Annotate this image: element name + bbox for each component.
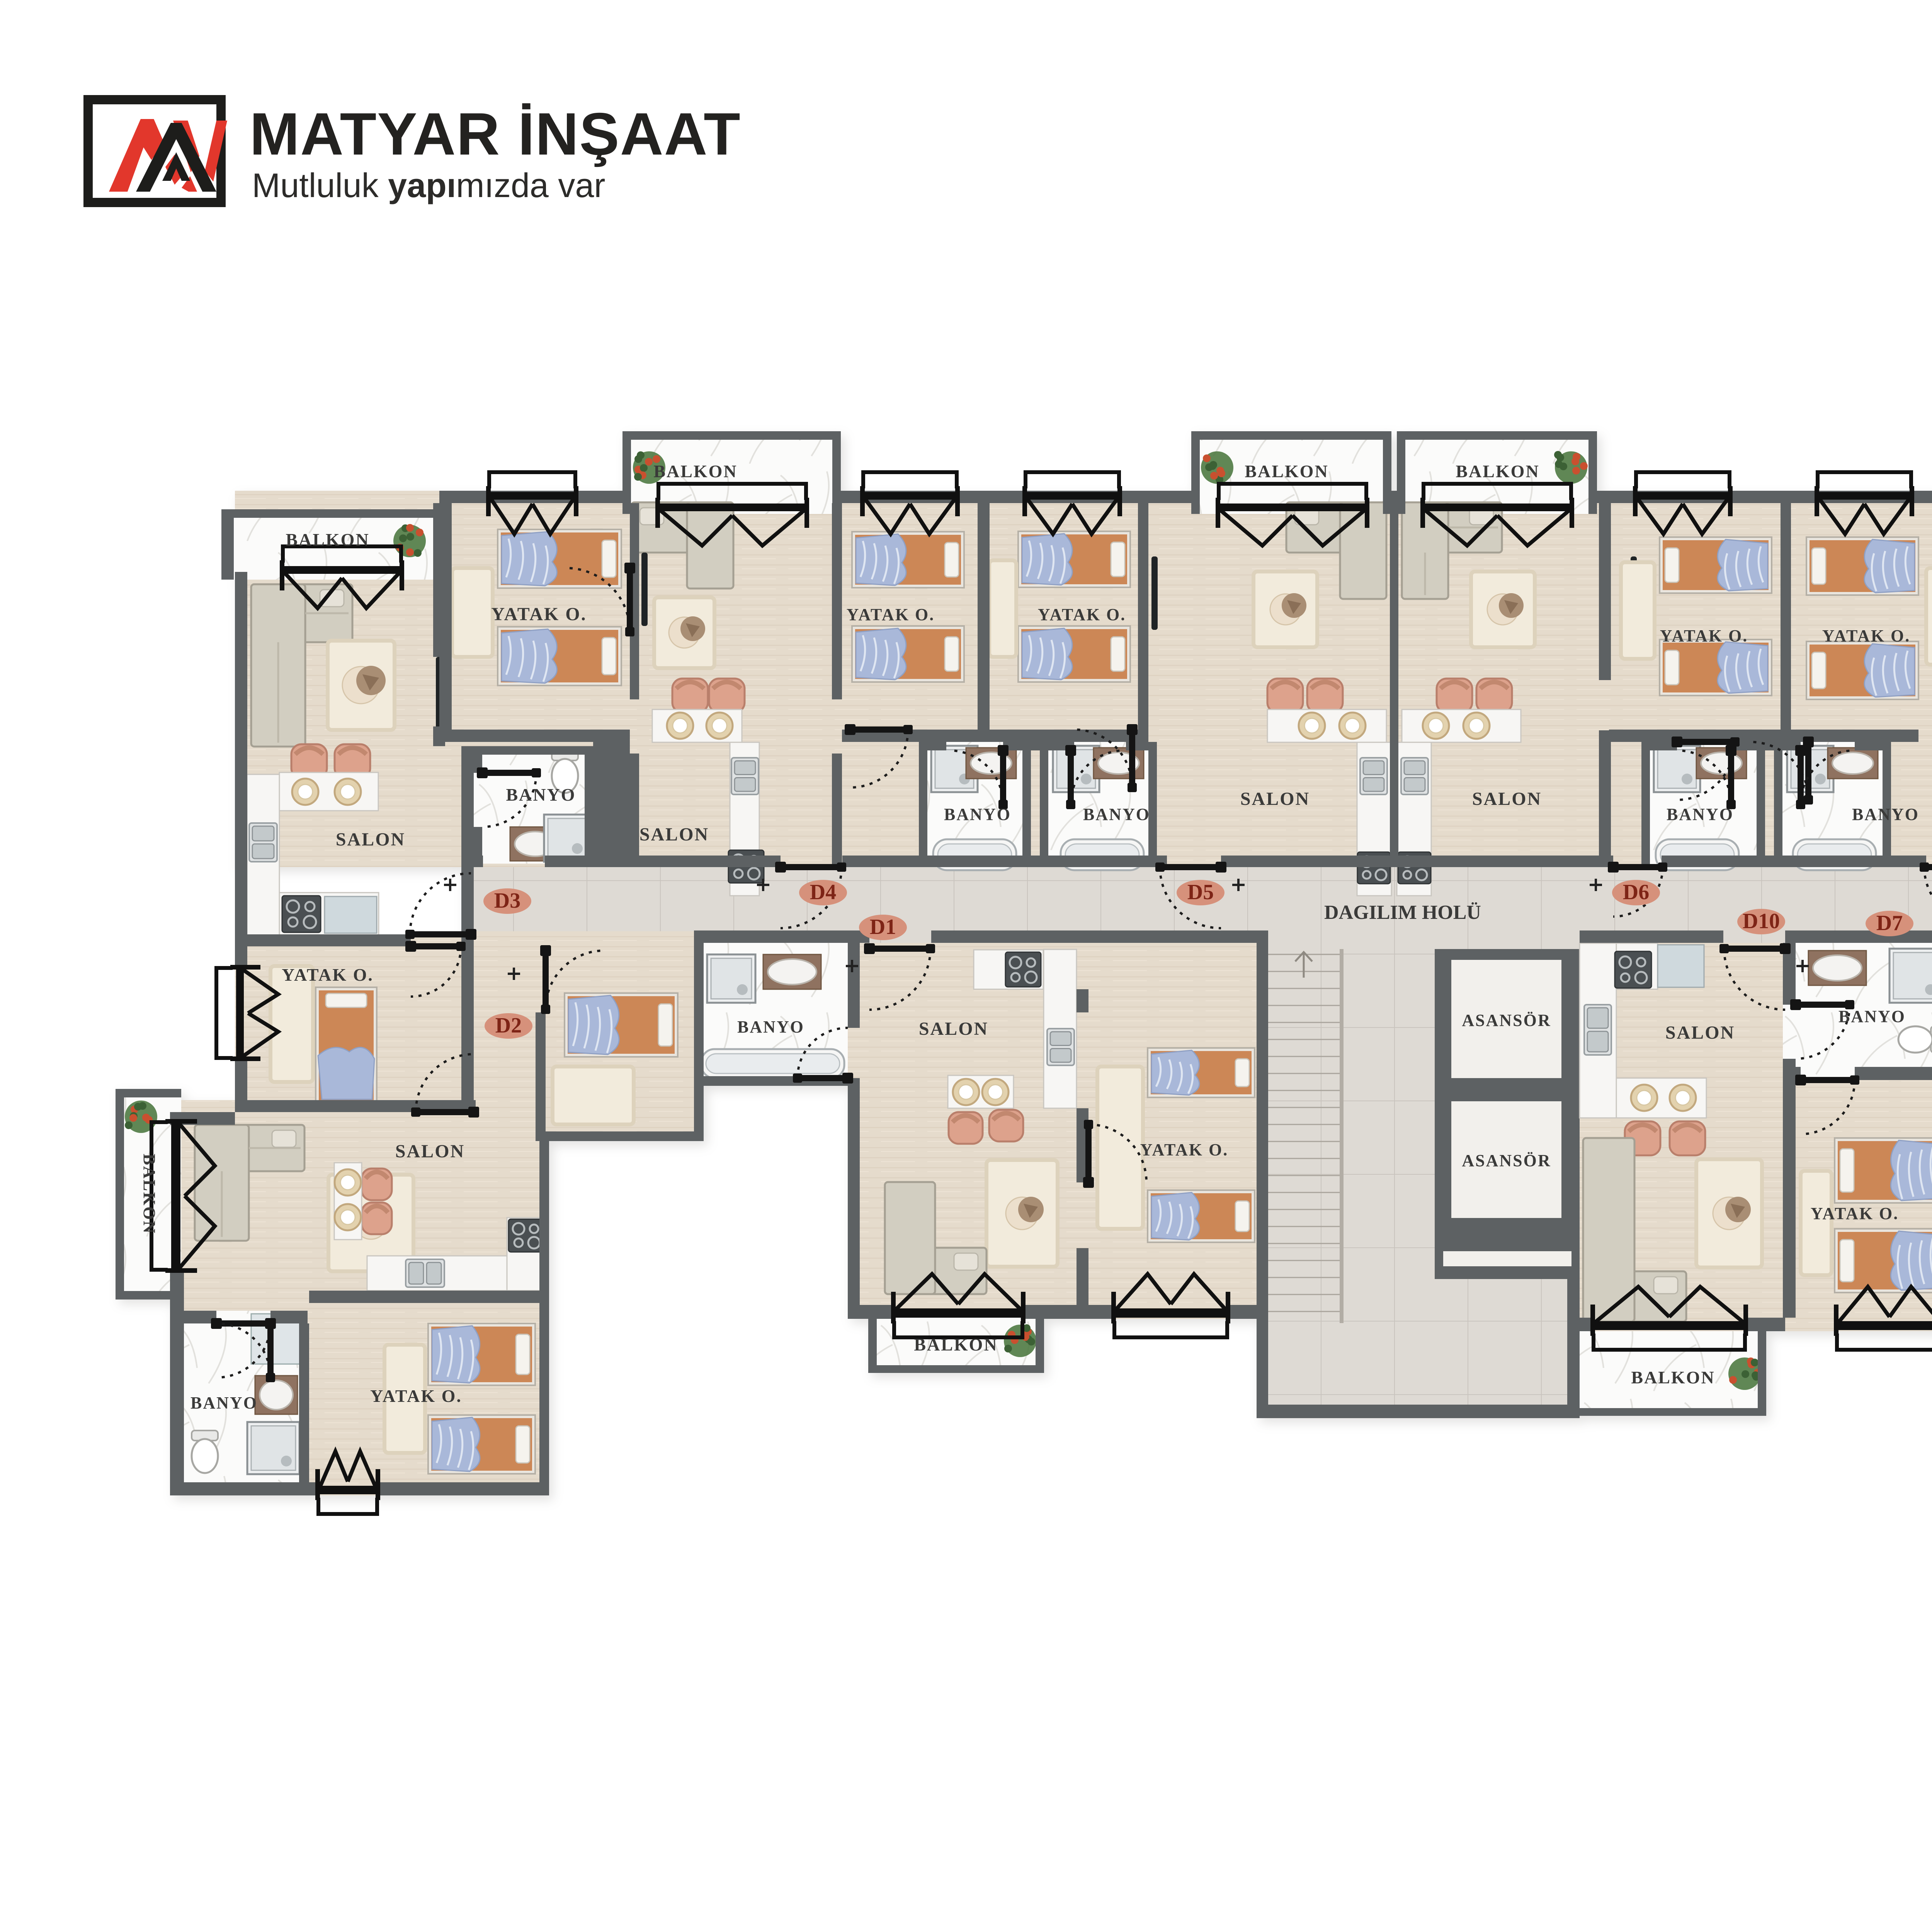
svg-text:D6: D6 xyxy=(1623,880,1649,904)
svg-text:D7: D7 xyxy=(1876,911,1903,935)
svg-text:BANYO: BANYO xyxy=(1083,805,1150,824)
svg-text:SALON: SALON xyxy=(1472,789,1542,809)
svg-text:ASANSÖR: ASANSÖR xyxy=(1462,1011,1551,1030)
svg-text:D2: D2 xyxy=(495,1014,522,1038)
svg-text:BALKON: BALKON xyxy=(653,461,737,481)
svg-text:YATAK O.: YATAK O. xyxy=(847,605,935,624)
svg-text:D3: D3 xyxy=(494,889,520,913)
svg-text:SALON: SALON xyxy=(336,829,405,850)
svg-text:YATAK O.: YATAK O. xyxy=(370,1386,462,1406)
svg-text:SALON: SALON xyxy=(1240,789,1310,809)
svg-text:BANYO: BANYO xyxy=(1667,805,1734,824)
svg-text:YATAK O.: YATAK O. xyxy=(1660,626,1748,645)
svg-text:BALKON: BALKON xyxy=(140,1154,159,1235)
svg-text:YATAK O.: YATAK O. xyxy=(282,965,374,985)
svg-text:BANYO: BANYO xyxy=(1852,805,1919,824)
svg-text:SALON: SALON xyxy=(919,1019,988,1039)
svg-text:SALON: SALON xyxy=(639,824,709,845)
svg-text:D10: D10 xyxy=(1743,909,1780,933)
svg-text:BANYO: BANYO xyxy=(190,1393,258,1412)
svg-text:D1: D1 xyxy=(870,915,896,939)
svg-text:YATAK O.: YATAK O. xyxy=(1822,626,1911,645)
svg-text:BANYO: BANYO xyxy=(506,785,576,805)
svg-text:YATAK O.: YATAK O. xyxy=(1140,1140,1229,1159)
svg-text:YATAK O.: YATAK O. xyxy=(1811,1204,1899,1223)
svg-text:YATAK O.: YATAK O. xyxy=(491,604,587,624)
svg-text:BALKON: BALKON xyxy=(286,530,369,549)
svg-text:DAGILIM HOLÜ: DAGILIM HOLÜ xyxy=(1324,902,1481,924)
svg-text:SALON: SALON xyxy=(395,1141,465,1162)
svg-text:MATYAR İNŞAAT: MATYAR İNŞAAT xyxy=(250,100,741,167)
svg-text:BALKON: BALKON xyxy=(1456,461,1539,481)
svg-text:YATAK O.: YATAK O. xyxy=(1038,605,1126,624)
svg-text:BALKON: BALKON xyxy=(914,1335,998,1354)
svg-text:BANYO: BANYO xyxy=(1838,1007,1906,1026)
svg-text:BALKON: BALKON xyxy=(1245,461,1328,481)
svg-text:BANYO: BANYO xyxy=(737,1017,804,1036)
svg-text:Mutluluk yapımızda var: Mutluluk yapımızda var xyxy=(252,166,605,204)
svg-text:BANYO: BANYO xyxy=(944,805,1011,824)
svg-text:ASANSÖR: ASANSÖR xyxy=(1462,1151,1551,1170)
svg-text:D4: D4 xyxy=(810,880,836,904)
svg-text:BALKON: BALKON xyxy=(1631,1368,1715,1387)
svg-text:D5: D5 xyxy=(1187,880,1214,904)
svg-text:SALON: SALON xyxy=(1665,1022,1735,1043)
